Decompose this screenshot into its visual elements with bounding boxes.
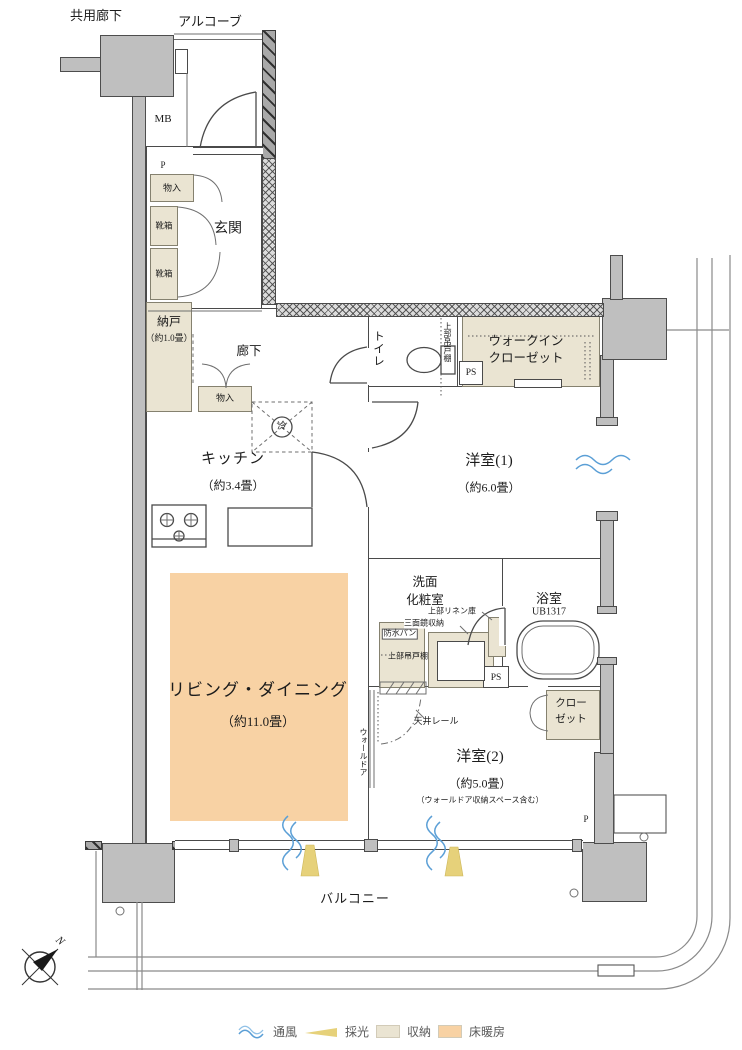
daylight-beam-icon [304, 1026, 338, 1038]
shared-corridor-label: 共用廊下 [70, 9, 122, 23]
legend-floor-heating-label: 床暖房 [469, 1023, 505, 1040]
shoe-box-upper-label: 靴箱 [155, 221, 172, 230]
legend-daylight-label: 採光 [345, 1023, 369, 1040]
bedroom2-pipe-label: P [583, 815, 588, 825]
alcove-label: アルコーブ [178, 15, 242, 29]
bedroom1-window [599, 424, 615, 518]
bathroom-door-opening [499, 606, 507, 646]
bedroom1-size-label: （約6.0畳） [457, 481, 520, 494]
window-cap [597, 606, 617, 614]
bedroom1-door-opening [365, 402, 373, 448]
pipe-space-lower-label: PS [491, 673, 502, 683]
closet-door-opening [528, 682, 548, 689]
balcony-equipment [614, 795, 666, 833]
entrance-storage-label: 物入 [163, 184, 181, 194]
north-boundary-wall [276, 303, 604, 317]
waterproof-pan-label: 防水パン [382, 629, 418, 640]
corridor-stub-wall [60, 57, 104, 72]
hallway-storage-label: 物入 [216, 394, 234, 404]
entrance-door [200, 92, 256, 148]
wic-sliding-door [514, 379, 562, 388]
ventilation-wave-icon [236, 1025, 266, 1039]
drain-icon [116, 907, 124, 915]
toilet-upper-cabinet-label: 上部吊戸棚 [442, 322, 453, 362]
meter-box-label: MB [154, 113, 171, 125]
right-wall-mid1 [600, 518, 614, 615]
bedroom2-size-label: （約5.0畳） [448, 777, 511, 790]
south-wall-piece-left [85, 841, 102, 850]
kitchen-size-label: （約3.4畳） [201, 479, 264, 492]
floor-plan: 共用廊下 アルコーブ MB P 物入 靴箱 靴箱 玄関 納戸 （約1.0畳） 廊… [0, 0, 742, 1050]
washroom-upper-cabinet-label: 上部吊戸棚 [388, 653, 428, 662]
kitchen-door-opening [365, 452, 373, 507]
closet-label-1: クロー [555, 698, 587, 710]
storeroom-label: 納戸 [157, 315, 181, 328]
living-label: リビング・ダイニング [168, 682, 348, 701]
window-cap [596, 417, 618, 426]
fridge-label: 冷 [277, 422, 287, 432]
railing-gate [598, 965, 634, 976]
floor-heating-swatch [438, 1025, 462, 1038]
column-top-left [100, 35, 174, 97]
storeroom-size-label: （約1.0畳） [145, 334, 192, 344]
washroom-label-1: 洗面 [412, 576, 437, 590]
stem-top-right [610, 255, 623, 300]
bedroom1-label: 洋室(1) [465, 453, 513, 470]
toilet-label: トイレ [370, 330, 386, 368]
meter-box-door [175, 49, 188, 74]
living-size-label: （約11.0畳） [221, 715, 295, 729]
wall-door-label: ウォールドア [358, 728, 369, 776]
entrance-east-wall-upper [262, 30, 276, 160]
ceiling-rail-label: 天井レール [413, 717, 458, 727]
vanity-counter [437, 641, 485, 681]
compass-north-label: N [53, 934, 67, 948]
closet-label-2: ゼット [555, 714, 587, 726]
bedroom2-note-label: （ウォールドア収納スペース含む） [416, 797, 543, 806]
left-wall [132, 96, 146, 844]
right-wall-lower [594, 752, 614, 844]
right-wall-mid2 [600, 659, 614, 754]
entrance-threshold [193, 147, 263, 155]
legend-storage-label: 収納 [407, 1023, 431, 1040]
room-bathroom [502, 558, 612, 690]
bedroom2-label: 洋室(2) [456, 749, 504, 766]
column-top-right [602, 298, 667, 360]
bathroom-unit-label: UB1317 [532, 607, 566, 618]
drain-icon [640, 833, 648, 841]
drain-icon [570, 889, 578, 897]
bathroom-window [599, 613, 615, 659]
column-bottom-right [582, 842, 647, 902]
legend-ventilation-label: 通風 [273, 1023, 297, 1040]
bathroom-label: 浴室 [536, 592, 562, 606]
kitchen-label: キッチン [201, 451, 265, 468]
entrance-pipe-label: P [160, 161, 165, 171]
hallway-label: 廊下 [236, 345, 261, 359]
wic-label-2: クローゼット [488, 352, 563, 366]
right-wall-upper [600, 355, 614, 425]
window-cap [364, 839, 378, 852]
window-cap [596, 511, 618, 521]
pipe-space-upper-label: PS [466, 368, 477, 378]
compass-icon [22, 949, 58, 985]
wic-label-1: ウォークイン [488, 335, 563, 349]
window-cap [597, 657, 617, 665]
room-bedroom1 [368, 386, 606, 562]
entrance-east-wall-lower [262, 158, 276, 305]
balcony-label: バルコニー [320, 892, 390, 906]
window-cap [572, 839, 582, 852]
upper-linen-label: 上部リネン庫 [428, 608, 476, 617]
entrance-label: 玄関 [214, 221, 242, 236]
shoe-box-lower-label: 靴箱 [155, 269, 172, 278]
window-cap [229, 839, 239, 852]
mirror-cabinet-label: 三面鏡収納 [404, 620, 444, 629]
storage-swatch [376, 1025, 400, 1038]
legend: 通風 採光 収納 床暖房 [236, 1023, 505, 1040]
column-bottom-left [102, 843, 175, 903]
